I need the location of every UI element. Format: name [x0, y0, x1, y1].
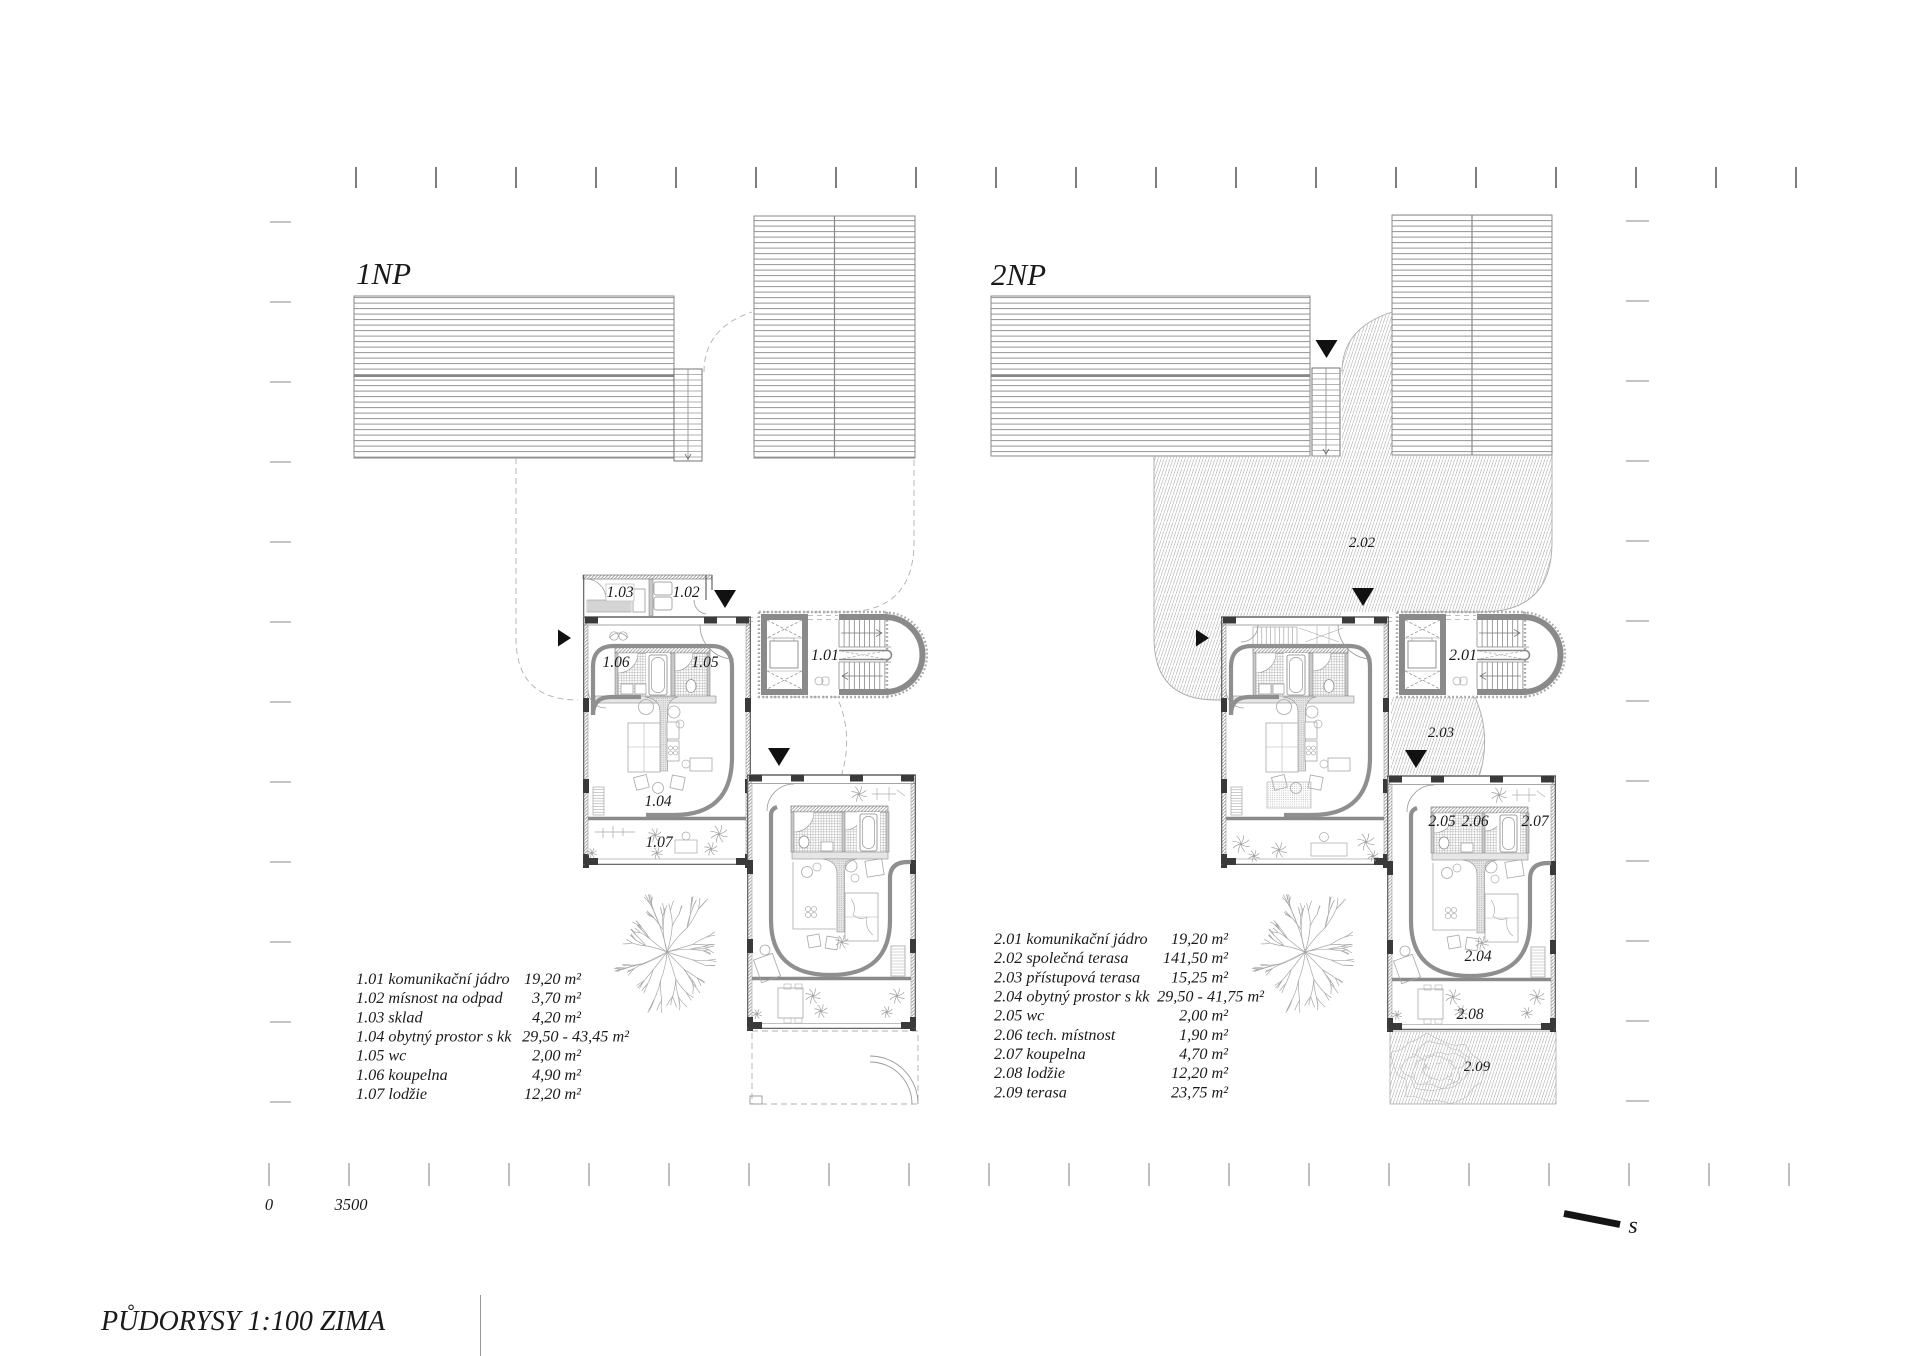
svg-text:19,20 m²: 19,20 m² — [1171, 930, 1229, 948]
svg-text:3500: 3500 — [334, 1195, 369, 1214]
svg-text:2.04 obytný prostor s kk: 2.04 obytný prostor s kk — [994, 988, 1150, 1006]
svg-text:2.02: 2.02 — [1349, 535, 1376, 551]
svg-text:PŮDORYSY 1:100 ZIMA: PŮDORYSY 1:100 ZIMA — [100, 1305, 386, 1337]
svg-text:2.09 terasa: 2.09 terasa — [994, 1083, 1067, 1101]
svg-text:1.04 obytný prostor s kk: 1.04 obytný prostor s kk — [356, 1028, 512, 1046]
svg-text:1.05: 1.05 — [691, 654, 718, 671]
svg-text:2.04: 2.04 — [1464, 948, 1491, 965]
svg-text:2.01 komunikační jádro: 2.01 komunikační jádro — [994, 930, 1148, 948]
svg-text:2.03 přístupová terasa: 2.03 přístupová terasa — [994, 968, 1140, 986]
svg-text:1.02 mísnost na odpad: 1.02 mísnost na odpad — [356, 989, 504, 1007]
svg-text:1,90 m²: 1,90 m² — [1179, 1026, 1229, 1044]
svg-text:1.06: 1.06 — [602, 654, 629, 671]
svg-text:2NP: 2NP — [991, 257, 1046, 292]
svg-text:2.02 společná terasa: 2.02 společná terasa — [994, 949, 1128, 967]
svg-text:1.02: 1.02 — [672, 584, 699, 601]
svg-text:2.07: 2.07 — [1521, 813, 1549, 830]
svg-text:1.03: 1.03 — [606, 584, 633, 601]
svg-text:1.03 sklad: 1.03 sklad — [356, 1008, 423, 1026]
svg-text:1.04: 1.04 — [644, 793, 671, 810]
svg-text:3,70 m²: 3,70 m² — [531, 989, 582, 1007]
svg-text:2.06: 2.06 — [1461, 813, 1488, 830]
svg-text:2,00 m²: 2,00 m² — [1179, 1007, 1229, 1025]
svg-text:4,70 m²: 4,70 m² — [1179, 1045, 1229, 1063]
svg-text:2.07 koupelna: 2.07 koupelna — [994, 1045, 1086, 1063]
svg-text:12,20 m²: 12,20 m² — [1171, 1064, 1229, 1082]
svg-text:19,20 m²: 19,20 m² — [524, 970, 582, 988]
svg-text:2.05: 2.05 — [1428, 813, 1455, 830]
svg-text:2.08: 2.08 — [1456, 1006, 1483, 1023]
svg-text:15,25 m²: 15,25 m² — [1171, 968, 1229, 986]
svg-text:2.03: 2.03 — [1428, 725, 1454, 741]
svg-text:2.05 wc: 2.05 wc — [994, 1007, 1045, 1025]
svg-text:2.06 tech. místnost: 2.06 tech. místnost — [994, 1026, 1116, 1044]
svg-text:0: 0 — [265, 1195, 274, 1214]
svg-text:23,75 m²: 23,75 m² — [1171, 1083, 1229, 1101]
svg-text:1.05 wc: 1.05 wc — [356, 1047, 407, 1065]
svg-text:4,90 m²: 4,90 m² — [532, 1066, 582, 1084]
svg-text:1.06 koupelna: 1.06 koupelna — [356, 1066, 448, 1084]
svg-text:29,50 - 41,75 m²: 29,50 - 41,75 m² — [1157, 988, 1265, 1006]
svg-text:1NP: 1NP — [356, 256, 411, 291]
svg-text:12,20 m²: 12,20 m² — [524, 1085, 582, 1103]
svg-text:2.08 lodžie: 2.08 lodžie — [994, 1064, 1065, 1082]
svg-text:2.01: 2.01 — [1449, 647, 1477, 664]
svg-text:1.07 lodžie: 1.07 lodžie — [356, 1085, 427, 1103]
svg-text:29,50 - 43,45 m²: 29,50 - 43,45 m² — [522, 1028, 630, 1046]
svg-text:1.01: 1.01 — [811, 647, 839, 664]
svg-text:s: s — [1628, 1213, 1637, 1239]
svg-text:1.07: 1.07 — [645, 834, 673, 851]
svg-text:141,50 m²: 141,50 m² — [1163, 949, 1229, 967]
svg-text:1.01 komunikační jádro: 1.01 komunikační jádro — [356, 970, 510, 988]
svg-text:4,20 m²: 4,20 m² — [532, 1008, 582, 1026]
svg-text:2,00 m²: 2,00 m² — [532, 1047, 582, 1065]
